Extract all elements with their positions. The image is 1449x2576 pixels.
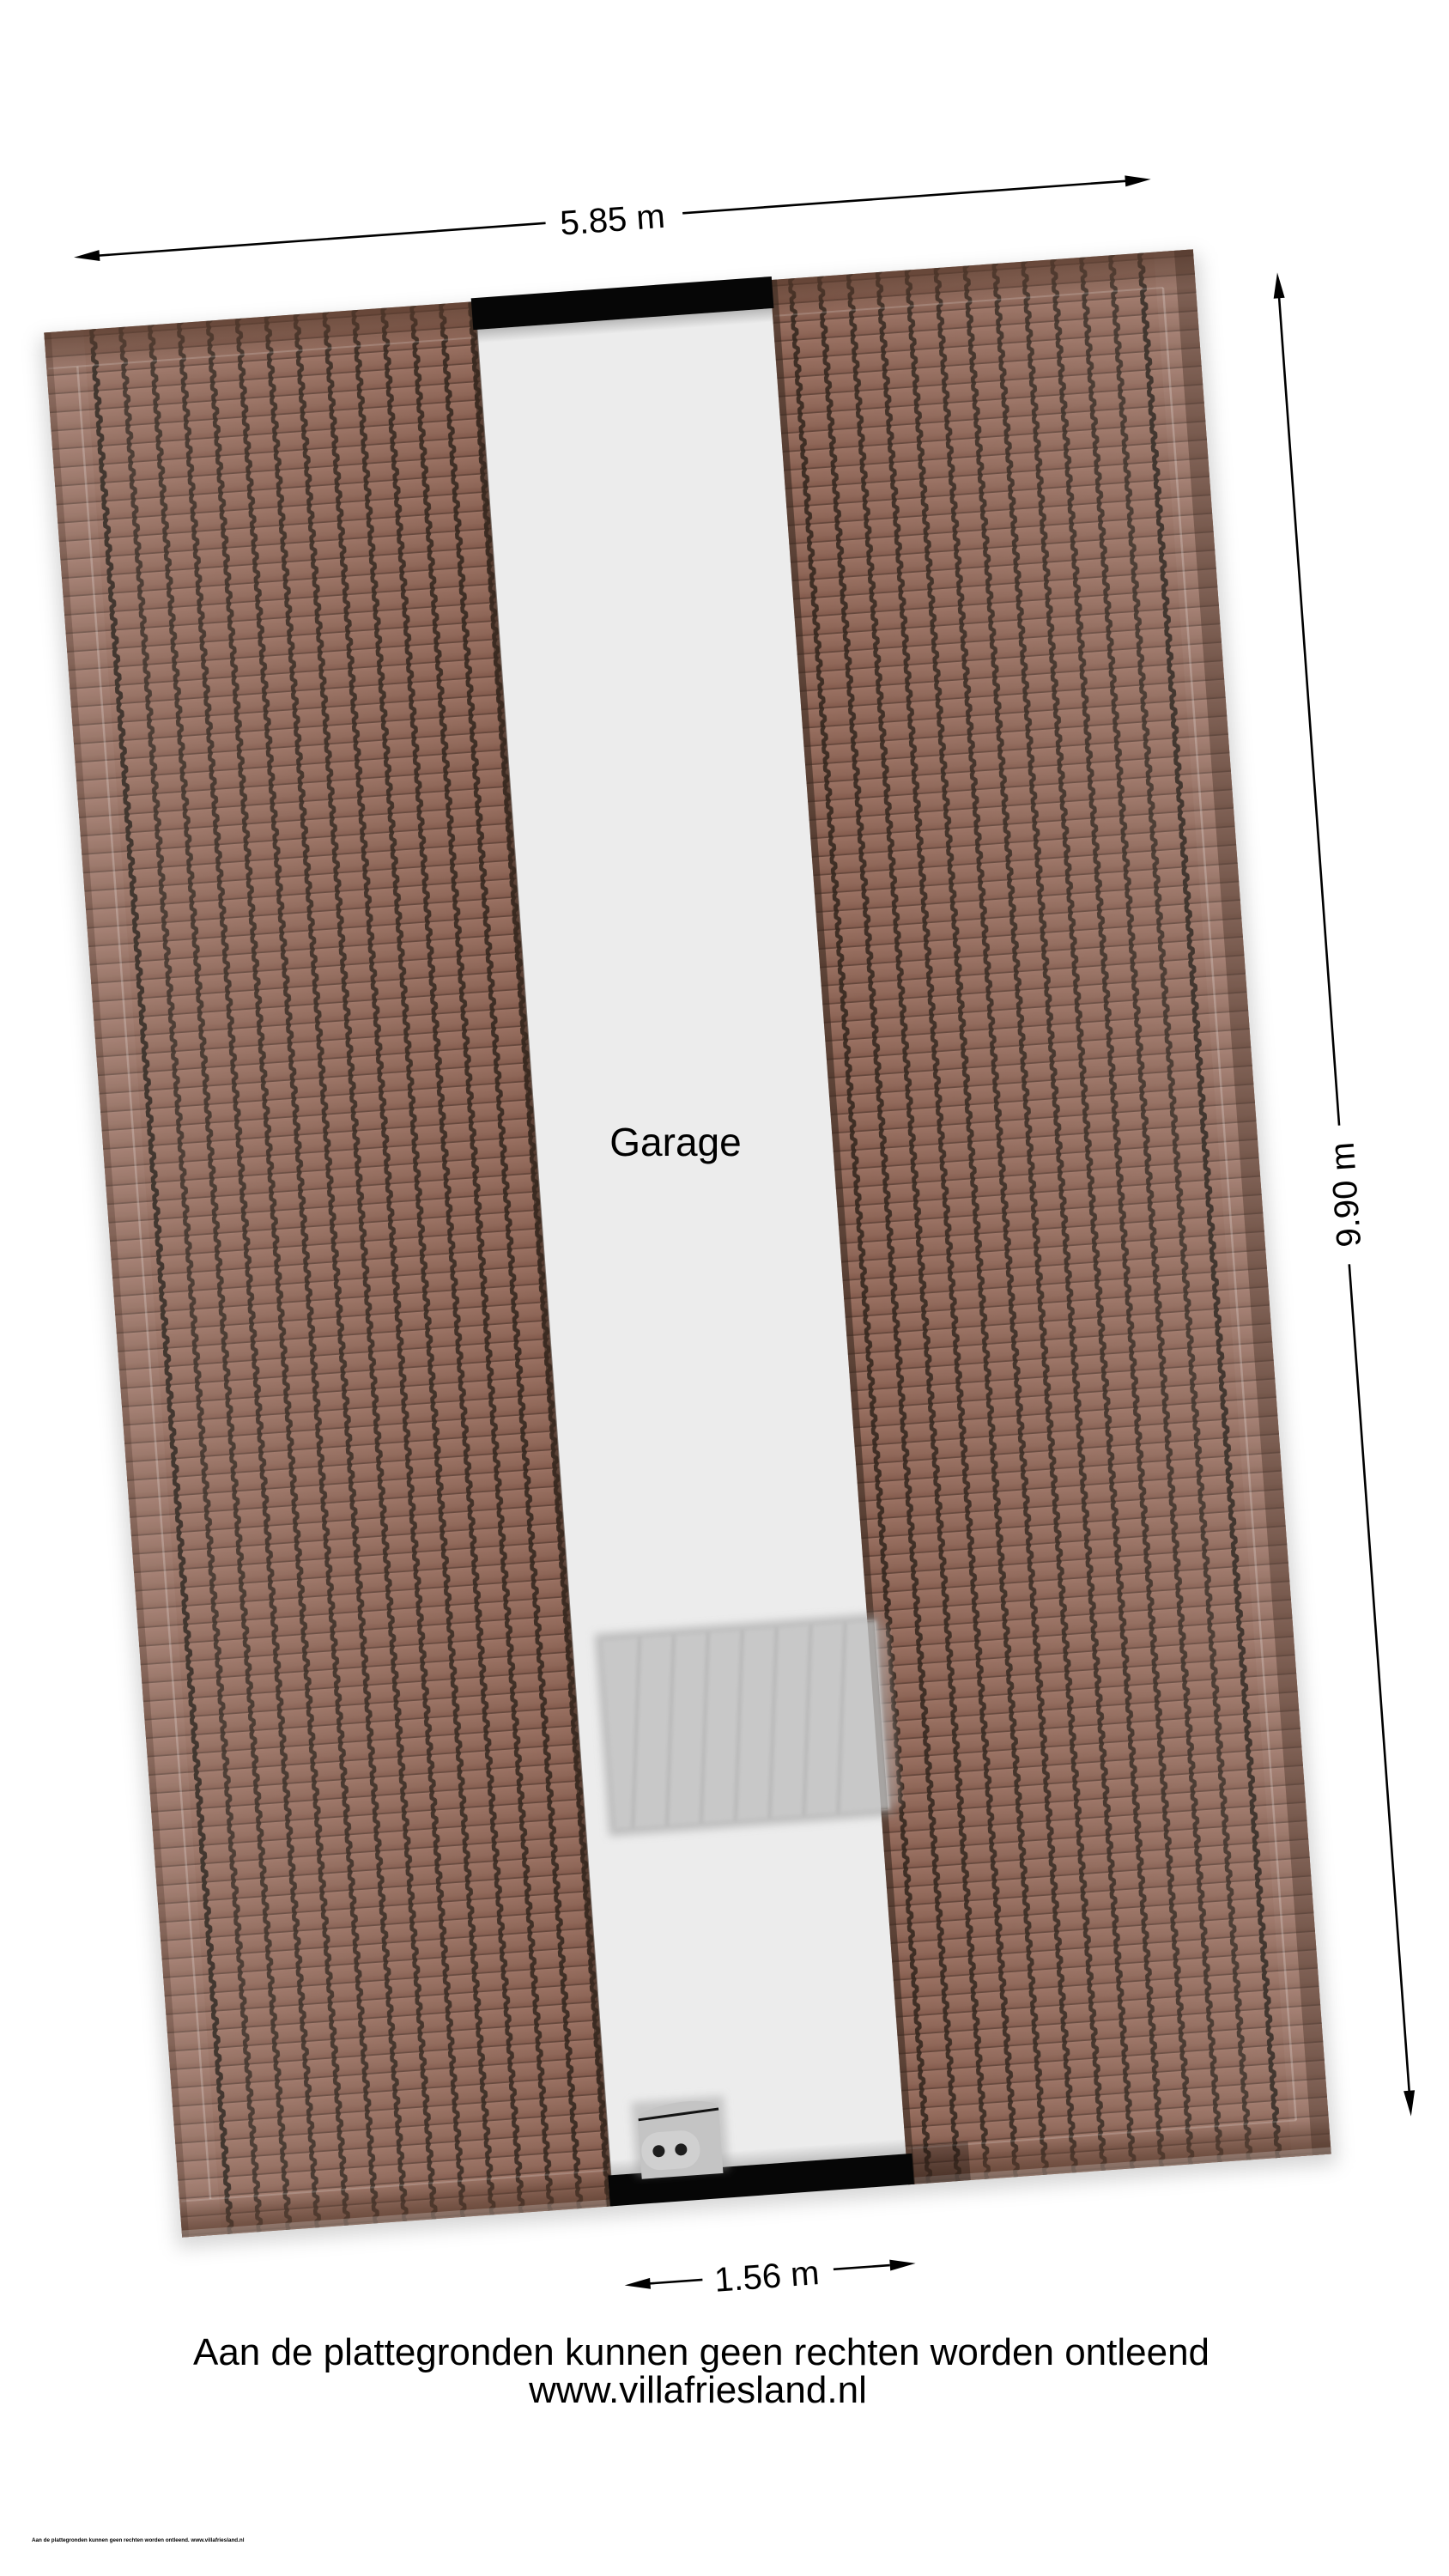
svg-text:Garage: Garage: [609, 1120, 741, 1164]
svg-text:9.90 m: 9.90 m: [1324, 1141, 1369, 1249]
svg-text:Aan de plattegronden kunnen ge: Aan de plattegronden kunnen geen rechten…: [193, 2331, 1210, 2373]
svg-text:5.85 m: 5.85 m: [559, 197, 666, 243]
svg-text:Aan de plattegronden kunnen ge: Aan de plattegronden kunnen geen rechten…: [32, 2537, 245, 2543]
svg-text:1.56 m: 1.56 m: [713, 2254, 821, 2300]
svg-text:www.villafriesland.nl: www.villafriesland.nl: [528, 2369, 867, 2411]
